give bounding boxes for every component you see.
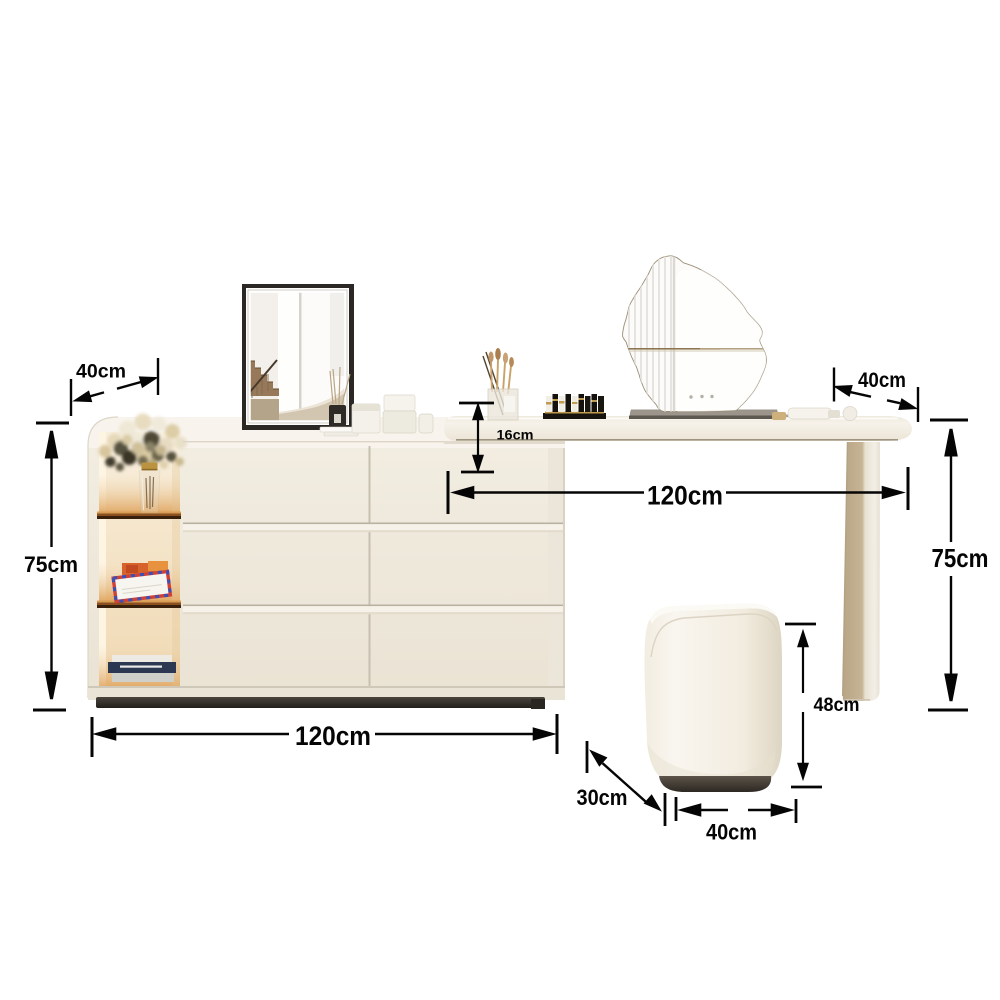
svg-text:40cm: 40cm bbox=[706, 820, 757, 845]
svg-text:120cm: 120cm bbox=[295, 721, 371, 751]
svg-text:40cm: 40cm bbox=[858, 369, 906, 392]
svg-text:75cm: 75cm bbox=[24, 552, 78, 577]
svg-text:40cm: 40cm bbox=[76, 362, 126, 383]
svg-text:30cm: 30cm bbox=[577, 785, 628, 810]
svg-text:48cm: 48cm bbox=[814, 694, 860, 716]
svg-text:120cm: 120cm bbox=[647, 481, 723, 511]
svg-text:75cm: 75cm bbox=[932, 543, 989, 573]
svg-text:16cm: 16cm bbox=[497, 428, 534, 443]
